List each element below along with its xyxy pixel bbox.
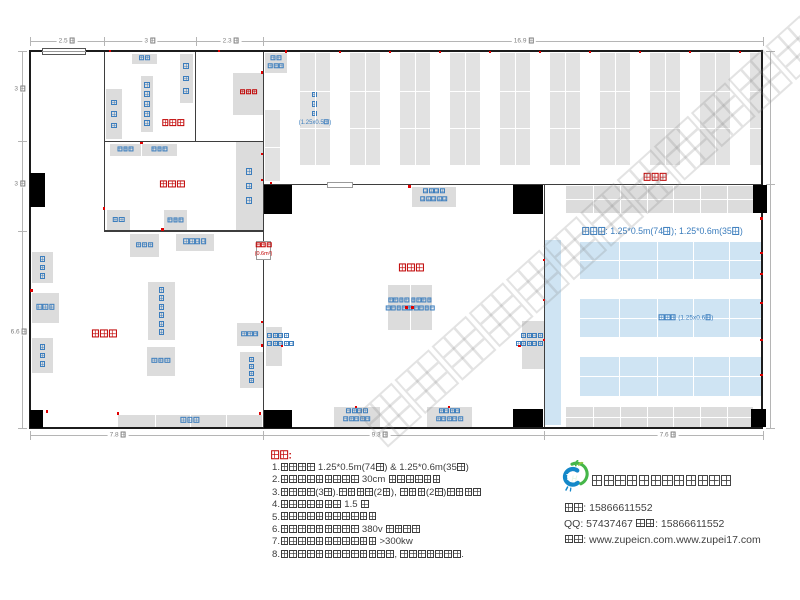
svg-text:H: H xyxy=(571,475,577,484)
